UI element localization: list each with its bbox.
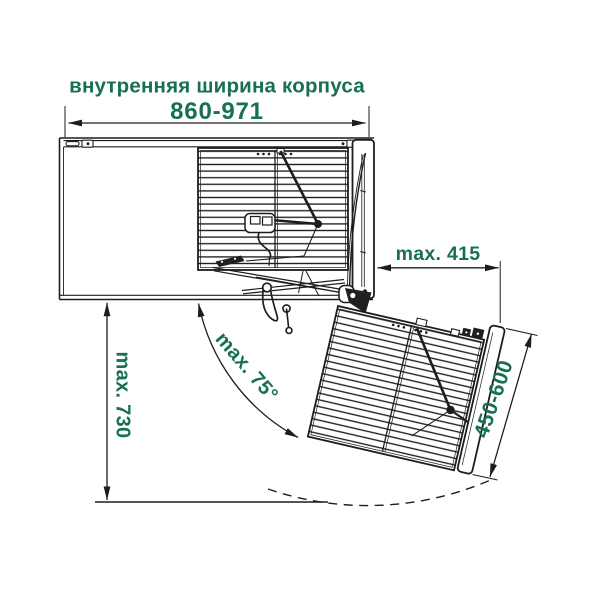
- technical-diagram-svg: внутренняя ширина корпуса 860-971: [0, 0, 600, 600]
- rail-screw-left: [87, 142, 90, 145]
- wire-basket: [198, 148, 348, 270]
- diagram-page: внутренняя ширина корпуса 860-971: [0, 0, 600, 600]
- cabinet-door-panel: [347, 140, 374, 298]
- wire-shelf-extended: [308, 290, 505, 474]
- max-height-value: max. 730: [112, 352, 134, 439]
- pivot-eye: [263, 283, 272, 292]
- max-offset-value: max. 415: [396, 243, 481, 265]
- door-hinge-small: [450, 329, 459, 337]
- max-angle-value: max. 75°: [211, 328, 283, 406]
- pivot-screw: [363, 289, 367, 293]
- rail-end-bracket: [66, 142, 79, 146]
- inner-width-value: 860-971: [170, 98, 264, 125]
- diagram-title: внутренняя ширина корпуса: [69, 75, 365, 98]
- swing-angle-arc: max. 75°: [199, 304, 299, 438]
- wire-shelf-stowed: [198, 148, 348, 294]
- front-width-extension-bottom: [473, 475, 498, 481]
- top-slide-rail: [64, 140, 357, 147]
- pivot-hole: [350, 293, 355, 298]
- dimension-inner-width: внутренняя ширина корпуса 860-971: [65, 75, 369, 138]
- dimension-max-height: max. 730: [95, 303, 328, 502]
- hanging-link: [263, 290, 278, 321]
- link-pivot-lower: [286, 328, 292, 334]
- bottom-slide-rail: [213, 268, 348, 291]
- rail-screw-right: [342, 142, 345, 145]
- front-width-extension-top: [506, 329, 538, 336]
- dimension-max-offset: max. 415: [378, 243, 501, 323]
